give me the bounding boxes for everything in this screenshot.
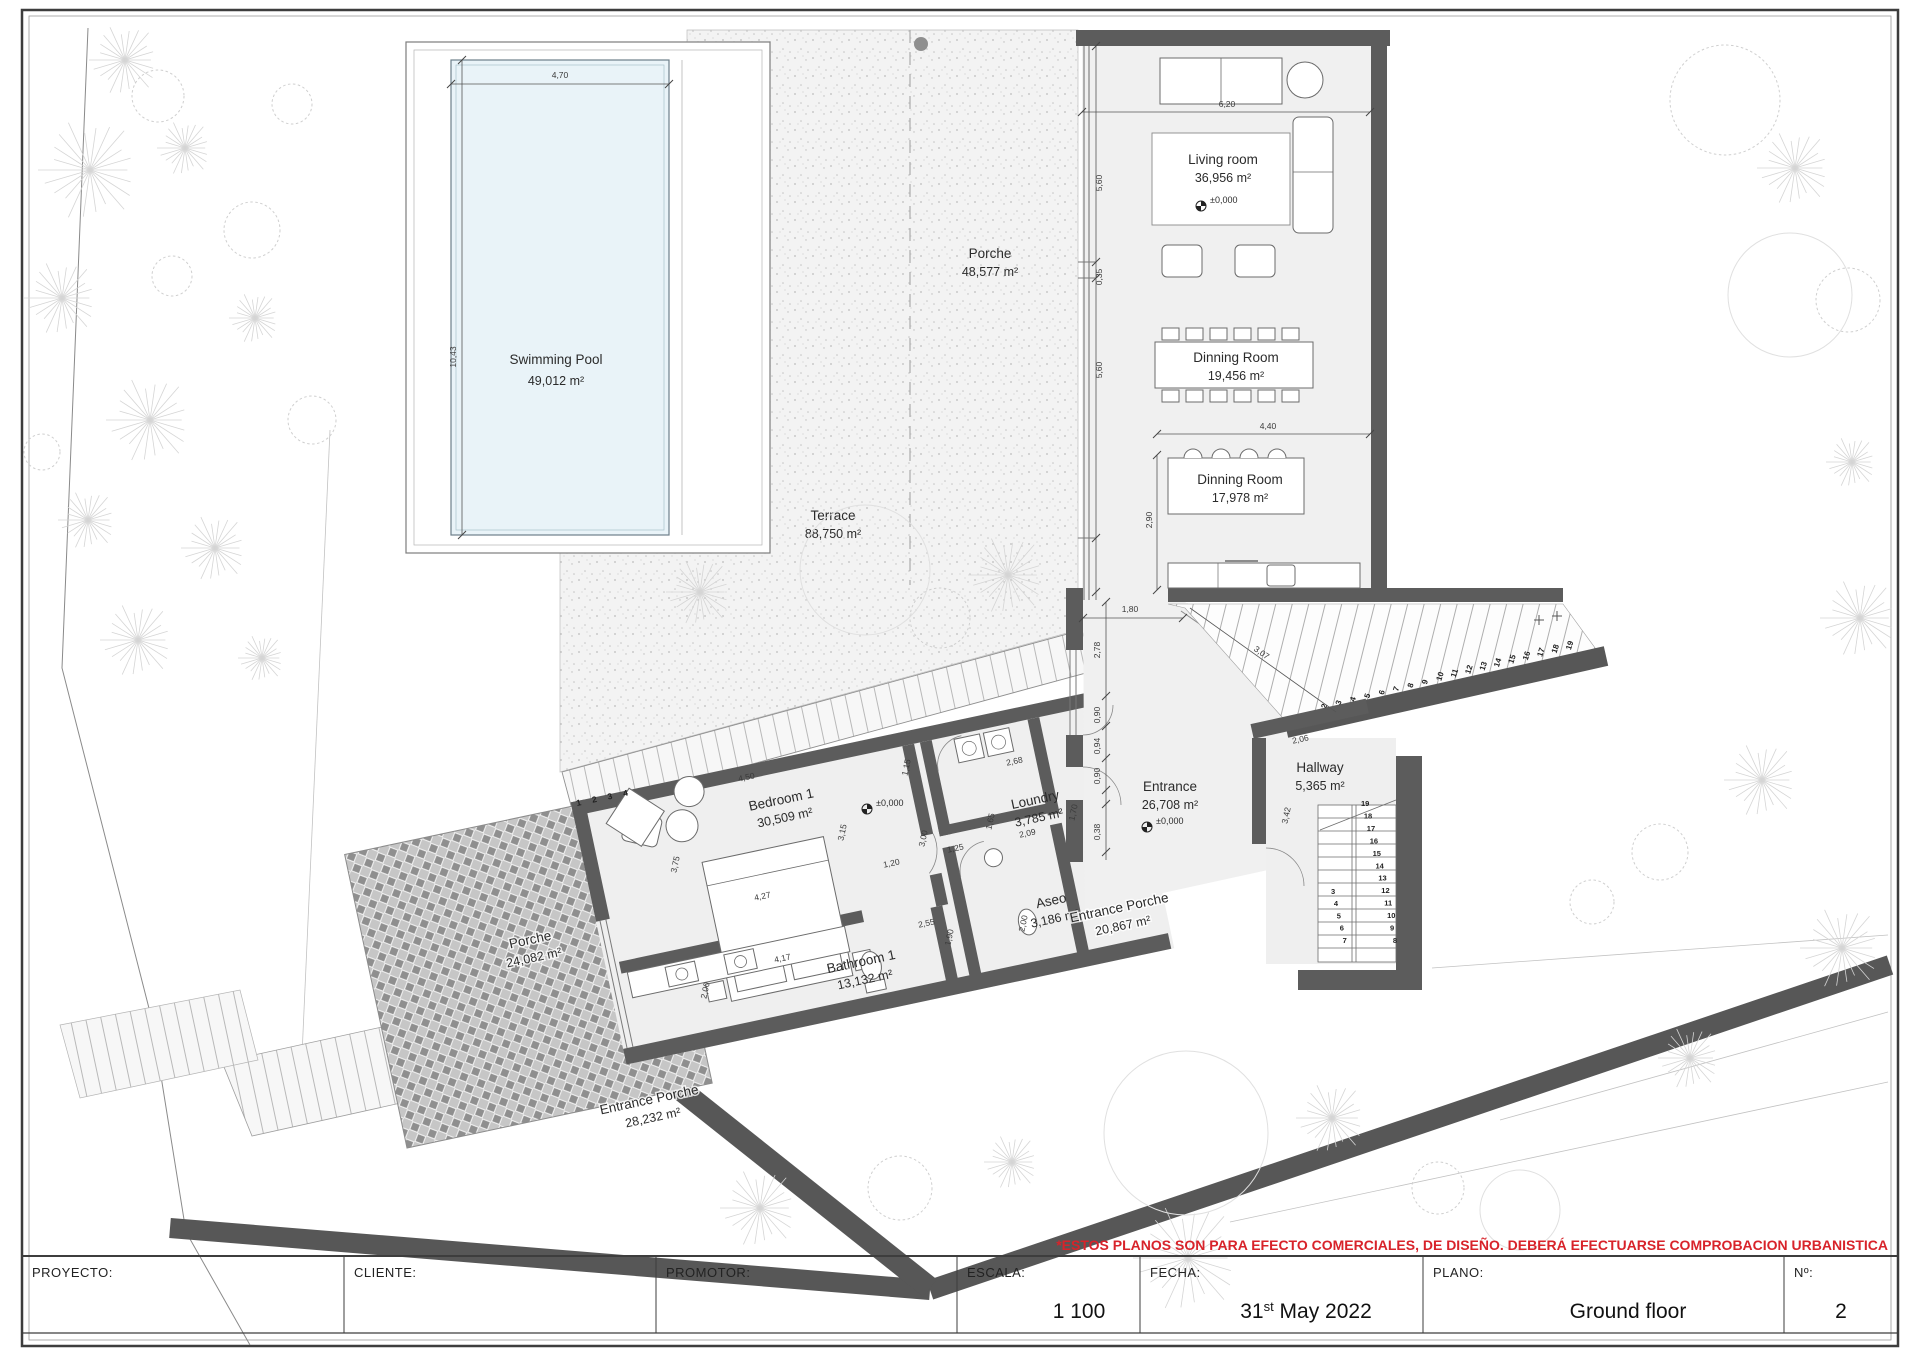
svg-text:18: 18: [1364, 811, 1372, 820]
room-label-dinning-room-1: Dinning Room: [1193, 350, 1279, 365]
dim-label: 4,40: [1260, 421, 1277, 431]
pool-area: [406, 42, 770, 553]
chaise: [1293, 117, 1333, 233]
svg-text:5: 5: [1337, 911, 1341, 920]
dim-label: 1,80: [1122, 604, 1139, 614]
field-escala-value: 1 100: [1053, 1300, 1106, 1323]
room-label-swimming-pool: Swimming Pool: [509, 352, 602, 367]
dim-label: 0,38: [1092, 823, 1102, 840]
floor-plan-drawing: 1234: [0, 0, 1920, 1358]
room-area-terrace: 88,750 m²: [805, 527, 861, 541]
field-escala-label: ESCALA:: [967, 1265, 1025, 1280]
svg-text:±0,000: ±0,000: [1210, 195, 1237, 205]
stair-block: [1250, 699, 1422, 990]
svg-text:13: 13: [1378, 874, 1386, 883]
dim-label: 2,78: [1092, 641, 1102, 658]
room-area-hallway: 5,365 m²: [1295, 779, 1344, 793]
field-numero-value: 2: [1835, 1300, 1847, 1323]
field-plano-value: Ground floor: [1570, 1300, 1687, 1323]
svg-text:7: 7: [1343, 936, 1347, 945]
disclaimer-note: *ESTOS PLANOS SON PARA EFECTO COMERCIALE…: [1056, 1236, 1888, 1253]
svg-text:3: 3: [1331, 887, 1335, 896]
dim-label: 6,20: [1219, 99, 1236, 109]
field-proyecto-label: PROYECTO:: [32, 1265, 113, 1280]
field-promotor-label: PROMOTOR:: [666, 1265, 750, 1280]
dim-label: 2,90: [1144, 511, 1154, 528]
dim-label: 5,60: [1094, 361, 1104, 378]
armchair: [1235, 245, 1275, 277]
field-numero-label: Nº:: [1794, 1265, 1813, 1280]
round-table: [1287, 62, 1323, 98]
svg-text:9: 9: [1390, 924, 1394, 933]
svg-text:16: 16: [1370, 836, 1378, 845]
room-label-entrance: Entrance: [1143, 779, 1197, 794]
room-label-terrace: Terrace: [810, 508, 855, 523]
dim-label: 0,35: [1094, 268, 1104, 285]
svg-text:19: 19: [1361, 799, 1369, 808]
dining-table-1: [1155, 328, 1313, 402]
dim-label: 0,94: [1092, 737, 1102, 754]
room-label-hallway: Hallway: [1296, 760, 1344, 775]
field-fecha-label: FECHA:: [1150, 1265, 1201, 1280]
room-area-swimming-pool: 49,012 m²: [528, 374, 584, 388]
svg-text:11: 11: [1384, 899, 1392, 908]
room-label-living-room: Living room: [1188, 152, 1258, 167]
svg-text:6: 6: [1340, 924, 1344, 933]
floor-plan-page: 1234: [0, 0, 1920, 1358]
svg-text:12: 12: [1381, 886, 1389, 895]
dim-label: 5,60: [1094, 174, 1104, 191]
stove: [1267, 565, 1295, 586]
field-fecha-value: 31st May 2022: [1240, 1299, 1372, 1323]
room-area-entrance: 26,708 m²: [1142, 798, 1198, 812]
room-area-living-room: 36,956 m²: [1195, 171, 1251, 185]
room-area-dinning-room-2: 17,978 m²: [1212, 491, 1268, 505]
svg-text:10: 10: [1387, 911, 1395, 920]
dim-label: 0,90: [1092, 706, 1102, 723]
kitchen-counter: [1168, 561, 1360, 588]
svg-text:17: 17: [1367, 824, 1375, 833]
room-area-porche-top: 48,577 m²: [962, 265, 1018, 279]
svg-text:±0,000: ±0,000: [1156, 816, 1183, 826]
dim-label: 10,43: [448, 346, 458, 368]
svg-text:8: 8: [1393, 936, 1397, 945]
room-area-dinning-room-1: 19,456 m²: [1208, 369, 1264, 383]
svg-text:±0,000: ±0,000: [876, 798, 903, 808]
armchair: [1162, 245, 1202, 277]
drain-icon: [914, 37, 928, 51]
field-cliente-label: CLIENTE:: [354, 1265, 417, 1280]
room-label-porche-top: Porche: [969, 246, 1012, 261]
svg-text:15: 15: [1373, 849, 1381, 858]
svg-text:14: 14: [1376, 861, 1385, 870]
swimming-pool: [451, 60, 669, 535]
room-label-dinning-room-2: Dinning Room: [1197, 472, 1283, 487]
title-block: PROYECTO: CLIENTE: PROMOTOR: ESCALA: 1 1…: [22, 1256, 1898, 1333]
field-plano-label: PLANO:: [1433, 1265, 1484, 1280]
dim-label: 0,90: [1092, 767, 1102, 784]
dim-label: 4,70: [552, 70, 569, 80]
